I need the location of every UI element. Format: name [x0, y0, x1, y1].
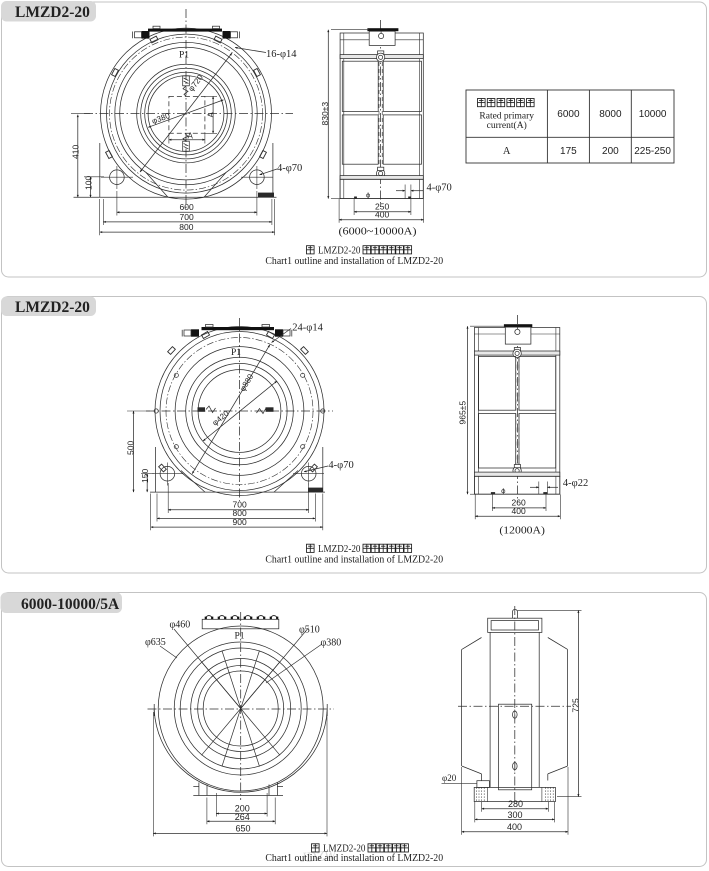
svg-text:500: 500 [126, 441, 136, 455]
svg-text:900: 900 [233, 517, 247, 527]
svg-text:φ880: φ880 [238, 372, 256, 393]
svg-text:A: A [207, 112, 216, 118]
svg-text:280: 280 [508, 799, 523, 809]
svg-text:600: 600 [180, 202, 194, 212]
svg-text:24-φ14: 24-φ14 [292, 323, 323, 334]
svg-text:(6000~10000A): (6000~10000A) [339, 226, 417, 238]
svg-text:800: 800 [179, 222, 193, 232]
svg-text:264: 264 [235, 812, 250, 822]
svg-text:LMZD2-20: LMZD2-20 [318, 544, 361, 555]
svg-text:830±3: 830±3 [320, 102, 330, 126]
svg-text:300: 300 [508, 810, 523, 820]
svg-text:10000: 10000 [639, 109, 667, 120]
svg-text:φ380: φ380 [321, 638, 342, 649]
svg-text:725: 725 [571, 698, 581, 712]
svg-text:LMZD2-20: LMZD2-20 [15, 4, 90, 21]
svg-text:Chart1 outline and installatio: Chart1 outline and installation of LMZD2… [265, 555, 443, 566]
svg-text:200: 200 [602, 146, 619, 157]
svg-text:Chart1 outline and installatio: Chart1 outline and installation of LMZD2… [265, 853, 443, 864]
svg-text:4-φ70: 4-φ70 [427, 183, 452, 194]
svg-text:700: 700 [180, 212, 194, 222]
svg-text:6000-10000/5A: 6000-10000/5A [21, 596, 120, 613]
svg-text:4-φ70: 4-φ70 [328, 460, 353, 471]
svg-text:100: 100 [84, 176, 94, 190]
svg-text:JDZW: JDZW [300, 849, 338, 867]
svg-text:φ510: φ510 [299, 625, 320, 636]
svg-text:400: 400 [375, 210, 389, 220]
svg-text:400: 400 [507, 822, 522, 832]
svg-text:A: A [188, 132, 194, 141]
svg-text:6000: 6000 [557, 109, 580, 120]
svg-text:(12000A): (12000A) [499, 525, 545, 537]
svg-text:175: 175 [560, 146, 577, 157]
svg-text:4-φ22: 4-φ22 [563, 478, 588, 489]
svg-text:current(A): current(A) [487, 120, 527, 131]
svg-text:150: 150 [140, 469, 150, 483]
svg-text:4-φ70: 4-φ70 [277, 163, 302, 174]
svg-text:LMZD2-20: LMZD2-20 [318, 246, 361, 257]
svg-text:φ380: φ380 [151, 111, 172, 126]
svg-text:650: 650 [236, 824, 251, 834]
svg-text:410: 410 [71, 145, 81, 159]
svg-text:Chart1 outline and installatio: Chart1 outline and installation of LMZD2… [265, 256, 443, 267]
svg-text:φ460: φ460 [170, 620, 191, 631]
svg-text:8000: 8000 [599, 109, 622, 120]
svg-text:965±5: 965±5 [458, 401, 468, 425]
svg-text:16-φ14: 16-φ14 [266, 49, 297, 60]
svg-text:Rated primary: Rated primary [479, 111, 534, 121]
svg-text:P1: P1 [235, 632, 245, 642]
svg-text:225-250: 225-250 [634, 146, 671, 157]
svg-text:P1: P1 [179, 51, 189, 61]
svg-text:A: A [503, 146, 511, 157]
svg-text:P1: P1 [231, 348, 241, 358]
svg-text:400: 400 [512, 506, 526, 516]
svg-text:φ20: φ20 [442, 773, 457, 783]
svg-text:LMZD2-20: LMZD2-20 [15, 299, 90, 316]
svg-text:φ635: φ635 [145, 637, 166, 648]
